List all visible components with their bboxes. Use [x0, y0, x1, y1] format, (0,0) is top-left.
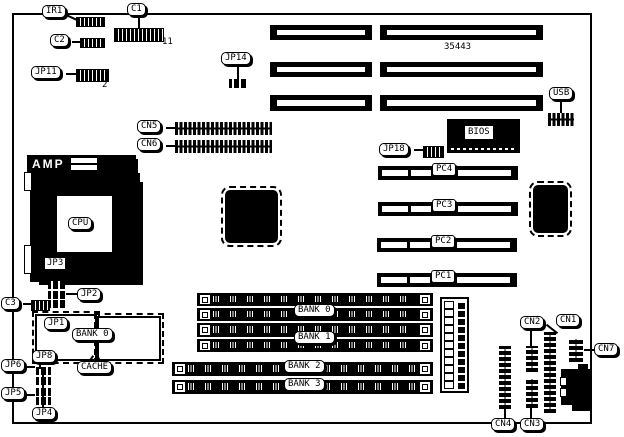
- label-bank1: BANK 1: [294, 331, 335, 344]
- usb-connector: [548, 113, 574, 126]
- cn4-header: [499, 346, 511, 409]
- cn3-header: [526, 379, 538, 408]
- leader-c1: [138, 15, 140, 29]
- power-connector: AMP: [27, 155, 136, 173]
- slot-stripe: [458, 170, 511, 176]
- leader-jp11: [66, 73, 77, 75]
- jp3-jumper: [48, 281, 65, 289]
- label-jp6: JP6: [1, 359, 25, 372]
- slot-stripe: [381, 242, 407, 248]
- ir1-connector: [76, 17, 105, 27]
- label-usb: USB: [549, 87, 573, 100]
- leader-jp8: [39, 364, 41, 369]
- label-cn1: CN1: [556, 314, 580, 327]
- ladder-right-column: [458, 301, 465, 389]
- keyboard-connector-notch: [560, 377, 567, 386]
- ladder-left-column: [444, 301, 454, 389]
- label-jp14: JP14: [221, 52, 251, 65]
- simm-clip: [199, 294, 211, 305]
- simm-clip: [199, 340, 211, 351]
- part-number: 35443: [444, 42, 471, 52]
- label-cn4: CN4: [491, 418, 515, 431]
- label-jp1: JP1: [44, 317, 68, 330]
- slot-stripe: [410, 242, 430, 248]
- slot-stripe: [458, 206, 511, 212]
- leader-jp3: [54, 270, 56, 282]
- label-c2: C2: [50, 34, 69, 47]
- c2-connector: [80, 38, 105, 48]
- pci-slot-pc3: PC3: [378, 202, 518, 216]
- leader-jp2: [66, 293, 77, 295]
- label-pc2: PC2: [431, 235, 455, 248]
- label-jp18: JP18: [379, 143, 409, 156]
- bios-chip: BIOS: [447, 119, 520, 153]
- isa-slot-2-right: [380, 62, 543, 77]
- simm-clip: [419, 381, 431, 393]
- simm-clip: [419, 340, 431, 351]
- jp18-connector: [423, 146, 444, 158]
- label-jp3: JP3: [45, 258, 65, 269]
- label-c3: C3: [1, 297, 20, 310]
- pci-slot-pc1: PC1: [377, 273, 517, 287]
- label-amp: AMP: [32, 157, 65, 171]
- jp2-jumper: [48, 291, 65, 299]
- socket-tab: [24, 245, 32, 274]
- label-jp11: JP11: [31, 66, 61, 79]
- socket-tab: [24, 172, 32, 191]
- label-cache-bank0: BANK 0: [72, 328, 113, 341]
- isa-slot-1-right: [380, 25, 543, 40]
- slot-stripe: [382, 206, 408, 212]
- label-c1: C1: [127, 3, 146, 16]
- power-header: [440, 297, 469, 393]
- simm-clip: [199, 324, 211, 336]
- label-jp5: JP5: [1, 387, 25, 400]
- cn5-connector: [175, 122, 272, 135]
- power-pin-strip: [71, 165, 97, 170]
- cn6-connector: [175, 140, 272, 153]
- motherboard-diagram: IR1 C1 11 C2 JP11 2 JP14 35443 USB CN5 C…: [0, 0, 624, 437]
- c1-pin-number: 11: [162, 37, 173, 47]
- cn7-header: [569, 339, 583, 362]
- keyboard-connector-step: [572, 404, 590, 411]
- jp11-pin-number: 2: [102, 80, 107, 90]
- simm-clip: [419, 324, 431, 336]
- slot-stripe: [381, 277, 407, 283]
- io-chip: [533, 185, 568, 233]
- isa-slot-1-left: [270, 25, 372, 40]
- slot-stripe: [382, 170, 408, 176]
- cn2-header: [526, 346, 538, 372]
- label-bank3: BANK 3: [284, 378, 325, 391]
- leader-cn6: [166, 145, 176, 147]
- c1-connector: [114, 28, 164, 42]
- label-jp2: JP2: [77, 288, 101, 301]
- label-bios: BIOS: [465, 126, 493, 139]
- label-cpu: CPU: [68, 217, 92, 230]
- label-bank0: BANK 0: [294, 304, 335, 317]
- label-jp8: JP8: [32, 350, 56, 363]
- leader-jp6: [25, 366, 35, 368]
- pci-slot-pc2: PC2: [377, 238, 517, 252]
- leader-jp5: [25, 394, 35, 396]
- label-pc3: PC3: [432, 199, 456, 212]
- simm-clip: [199, 309, 211, 320]
- isa-slot-3-left: [270, 95, 372, 111]
- label-cn7: CN7: [594, 343, 618, 356]
- leader-jp18: [414, 149, 423, 151]
- slot-stripe: [457, 277, 510, 283]
- chipset-chip: [225, 190, 278, 243]
- leader-cn5: [166, 127, 176, 129]
- power-pin-strip: [71, 158, 97, 163]
- leader-usb: [560, 101, 562, 113]
- label-ir1: IR1: [42, 5, 66, 18]
- simm-clip: [174, 363, 186, 375]
- slot-stripe: [411, 206, 431, 212]
- keyboard-connector-notch: [560, 388, 567, 397]
- label-pc1: PC1: [431, 270, 455, 283]
- leader-cn7: [584, 349, 594, 351]
- cn1-header: [544, 332, 556, 413]
- leader-cn2: [530, 330, 532, 347]
- slot-stripe: [457, 242, 510, 248]
- simm-clip: [174, 381, 186, 393]
- label-cn2: CN2: [520, 316, 544, 329]
- leader-c3: [23, 303, 31, 305]
- label-cn3: CN3: [520, 418, 544, 431]
- label-jp4: JP4: [32, 407, 56, 420]
- label-cn6: CN6: [137, 138, 161, 151]
- simm-clip: [419, 294, 431, 305]
- jp14-jumper: [229, 79, 248, 88]
- leader-jp14: [237, 66, 239, 79]
- jumper-column-line: [42, 370, 44, 402]
- label-cache: CACHE: [77, 361, 112, 374]
- label-bank2: BANK 2: [284, 360, 325, 373]
- slot-stripe: [410, 277, 430, 283]
- simm-clip: [419, 309, 431, 320]
- isa-slot-3-right: [380, 95, 543, 111]
- pci-slot-pc4: PC4: [378, 166, 518, 180]
- keyboard-connector: [561, 369, 590, 405]
- label-pc4: PC4: [432, 163, 456, 176]
- label-cn5: CN5: [137, 120, 161, 133]
- jp2-jumper-2: [48, 300, 65, 308]
- c3-connector: [31, 300, 50, 311]
- leader-c2: [72, 41, 81, 43]
- isa-slot-2-left: [270, 62, 372, 77]
- simm-clip: [419, 363, 431, 375]
- slot-stripe: [411, 170, 431, 176]
